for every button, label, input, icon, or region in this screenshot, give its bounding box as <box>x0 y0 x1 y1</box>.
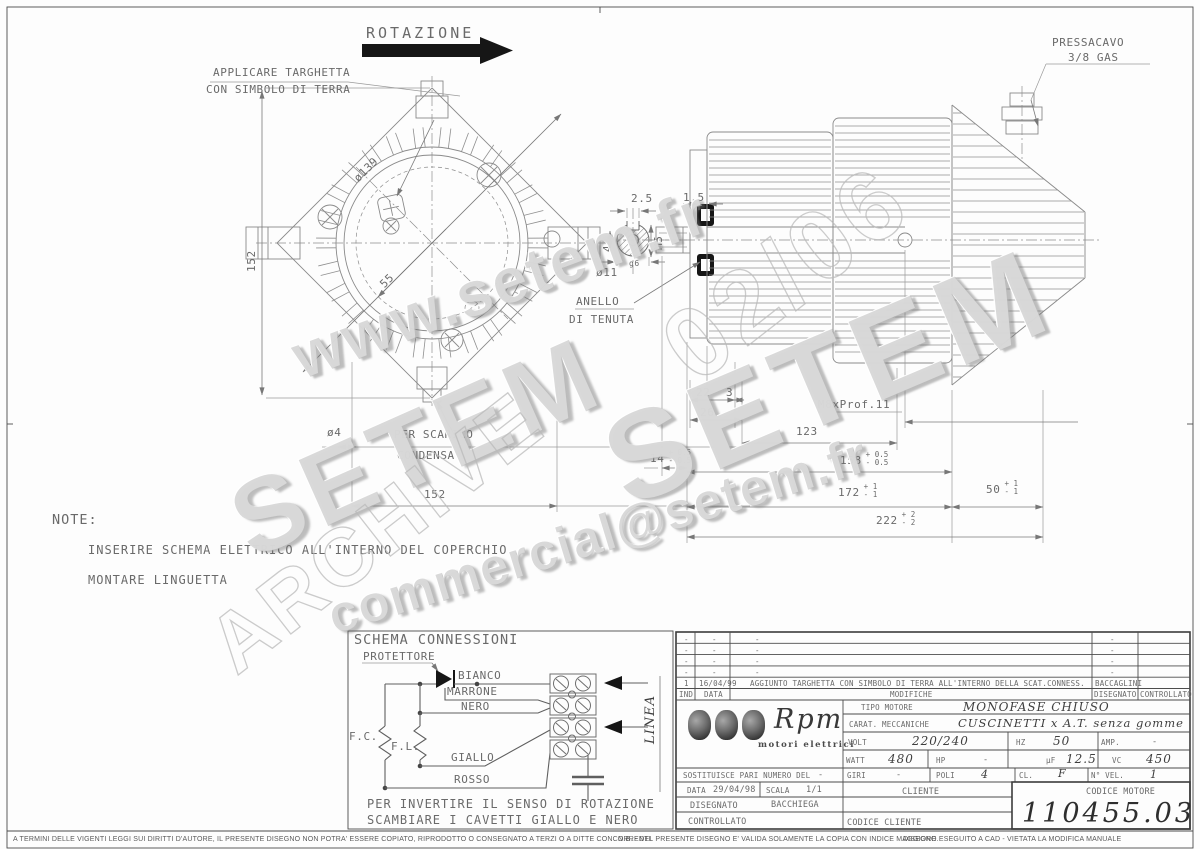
rev-row-data: - <box>712 658 717 666</box>
targhetta-note-line1: APPLICARE TARGHETTA <box>213 67 350 78</box>
value-volt: 220/240 <box>912 735 969 747</box>
dim-172-value: 172 <box>838 486 860 499</box>
rev-row-data: - <box>712 647 717 655</box>
rev-row-data: - <box>712 669 717 677</box>
label-cl: CL. <box>1019 772 1033 780</box>
notes-line2: MONTARE LINGUETTA <box>88 574 228 586</box>
seal-label-line1: ANELLO <box>576 296 619 307</box>
wire-label-rosso: ROSSO <box>454 774 490 785</box>
wire-label-bianco: BIANCO <box>458 670 501 681</box>
value-watt: 480 <box>888 753 914 765</box>
rev-header-modifiche: MODIFICHE <box>890 691 932 699</box>
logo-mark <box>715 710 738 740</box>
label-vc: VC <box>1112 757 1121 765</box>
dim-14-tol-minus: - 0.5 <box>668 457 691 465</box>
rotation-label: ROTAZIONE <box>366 26 474 41</box>
wire-label-marrone: MARRONE <box>447 686 498 697</box>
rev-row-disegnato: - <box>1110 669 1115 677</box>
dim-14-value: 14 <box>650 452 664 465</box>
rev-row-modifiche: - <box>755 669 760 677</box>
value-n-vel: 1 <box>1150 769 1158 780</box>
label-hz: HZ <box>1016 739 1025 747</box>
logo-name: Rpm <box>774 704 843 735</box>
label-linea: LINEA <box>644 695 657 744</box>
dim-26: 26 <box>700 407 714 418</box>
dim-shaft-diameter: ø11 <box>596 267 618 278</box>
rev-row-ind: - <box>684 669 689 677</box>
dim-thread-m5: M5 <box>653 236 664 250</box>
dim-drain-hole: ø4 <box>327 427 341 438</box>
dim-bolt-radius: 55 <box>378 272 396 290</box>
value-giri: - <box>896 771 901 780</box>
footer-nb: N.B. - DEL PRESENTE DISEGNO E' VALIDA SO… <box>618 836 939 843</box>
value-uf: 12.5 <box>1066 753 1097 765</box>
rev-row-data: 16/04/99 <box>699 680 737 688</box>
dim-222-value: 222 <box>876 514 898 527</box>
label-giri: GIRI <box>847 772 866 780</box>
drain-note-line1: PER SCARICO <box>394 429 473 440</box>
wire-label-nero: NERO <box>461 701 490 712</box>
rev-header-disegnato: DISEGNATO <box>1094 691 1136 699</box>
dim-key-depth: 4 <box>602 245 613 252</box>
label-fl: F.L. <box>391 741 420 752</box>
rev-row-ind: - <box>684 647 689 655</box>
rev-header-controllato: CONTROLLATO <box>1140 691 1192 699</box>
value-poli: 4 <box>981 769 989 780</box>
dim-fin-diameter: ø139 <box>352 156 380 184</box>
rev-header-data: DATA <box>704 691 723 699</box>
rev-row-disegnato: - <box>1110 647 1115 655</box>
wire-label-giallo: GIALLO <box>451 752 494 763</box>
schema-note-line2: SCAMBIARE I CAVETTI GIALLO E NERO <box>367 814 638 826</box>
label-scala: SCALA <box>766 787 790 795</box>
dim-key-width: 2.5 <box>631 193 653 204</box>
label-watt: WATT <box>846 757 865 765</box>
dim-width-bottom: 152 <box>424 489 446 500</box>
label-codice-cliente: CODICE CLIENTE <box>847 819 921 828</box>
rev-row-disegnato: BACCAGLINI <box>1095 680 1142 688</box>
targhetta-note-line2: CON SIMBOLO DI TERRA <box>206 84 350 95</box>
labels-layer: ROTAZIONE APPLICARE TARGHETTA CON SIMBOL… <box>0 0 1200 849</box>
label-poli: POLI <box>936 772 955 780</box>
rev-row-ind: - <box>684 658 689 666</box>
label-codice-motore: CODICE MOTORE <box>1086 788 1155 797</box>
label-volt: VOLT <box>848 739 867 747</box>
logo-mark <box>688 710 711 740</box>
notes-line1: INSERIRE SCHEMA ELETTRICO ALL'INTERNO DE… <box>88 544 507 556</box>
rev-row-disegnato: - <box>1110 636 1115 644</box>
rev-row-modifiche: - <box>755 658 760 666</box>
rev-row-modifiche: - <box>755 636 760 644</box>
footer-copyright: A TERMINI DELLE VIGENTI LEGGI SUI DIRITT… <box>13 836 653 843</box>
dim-50: 50+ 1- 1 <box>986 482 1018 498</box>
label-cliente: CLIENTE <box>902 788 939 797</box>
label-data: DATA <box>687 787 706 795</box>
dim-22: 22 <box>696 387 710 398</box>
label-disegnato: DISEGNATO <box>690 802 738 811</box>
dim-222: 222+ 2- 2 <box>876 513 915 529</box>
dim-158-value: 158 <box>840 454 862 467</box>
label-tipo-motore: TIPO MOTORE <box>861 704 913 712</box>
label-fc: F.C. <box>349 731 378 742</box>
pressacavo-label-line1: PRESSACAVO <box>1052 37 1124 48</box>
value-data: 29/04/98 <box>713 786 756 795</box>
value-disegnato: BACCHIEGA <box>771 801 819 810</box>
rev-row-ind: 1 <box>684 680 689 688</box>
label-sostituisce: SOSTITUISCE PARI NUMERO DEL <box>683 772 810 780</box>
value-carat-meccaniche: CUSCINETTI x A.T. senza gomme <box>958 718 1184 730</box>
drain-note-line2: CONDENSA <box>397 450 455 461</box>
dim-172-tol-minus: - 1 <box>864 491 878 499</box>
dim-222-tol-minus: - 2 <box>902 519 916 527</box>
pressacavo-label-line2: 3/8 GAS <box>1068 52 1119 63</box>
dim-shaft-tolerance: g6 <box>629 260 640 268</box>
rev-row-disegnato: - <box>1110 658 1115 666</box>
drawing-sheet: ROTAZIONE APPLICARE TARGHETTA CON SIMBOL… <box>0 0 1200 849</box>
value-sostituisce: - <box>818 771 823 780</box>
value-hz: 50 <box>1053 735 1070 747</box>
rev-row-ind: - <box>684 636 689 644</box>
rev-header-ind: IND <box>679 691 693 699</box>
value-scala: 1/1 <box>806 786 822 795</box>
value-vc: 450 <box>1146 753 1172 765</box>
label-n-vel: N° VEL. <box>1091 772 1124 780</box>
logo-mark <box>742 710 765 740</box>
label-carat-meccaniche: CARAT. MECCANICHE <box>849 721 929 729</box>
value-codice-motore: 110455.03 <box>1022 800 1195 827</box>
logo-subtitle: motori elettrici <box>758 740 855 750</box>
dim-thread-m8: M8xProf.11 <box>818 399 890 410</box>
dim-158-tol-minus: - 0.5 <box>866 459 889 467</box>
dim-3: 3 <box>726 387 733 398</box>
rev-row-data: - <box>712 636 717 644</box>
dim-123: 123 <box>796 426 818 437</box>
dim-seal: 1.5 <box>683 192 705 203</box>
rev-row-modifiche: AGGIUNTO TARGHETTA CON SIMBOLO DI TERRA … <box>750 680 1085 688</box>
value-cl: F <box>1058 768 1067 779</box>
label-amp: AMP. <box>1101 739 1120 747</box>
dim-50-tol-minus: - 1 <box>1004 488 1018 496</box>
rev-row-modifiche: - <box>755 647 760 655</box>
label-uf: µF <box>1046 757 1055 765</box>
schema-title: SCHEMA CONNESSIONI <box>354 634 518 648</box>
notes-title: NOTE: <box>52 514 98 528</box>
label-protettore: PROTETTORE <box>363 651 435 662</box>
value-tipo-motore: MONOFASE CHIUSO <box>963 701 1110 713</box>
schema-note-line1: PER INVERTIRE IL SENSO DI ROTAZIONE <box>367 798 655 810</box>
dim-14: 14+ 0.5- 0.5 <box>650 451 691 467</box>
value-hp: - <box>983 756 988 765</box>
value-amp: - <box>1152 738 1157 747</box>
dim-50-value: 50 <box>986 483 1000 496</box>
dim-158: 158+ 0.5- 0.5 <box>840 453 888 469</box>
label-hp: HP <box>936 757 945 765</box>
dim-square-height: 152 <box>246 250 257 272</box>
footer-cad: DISEGNO ESEGUITO A CAD - VIETATA LA MODI… <box>903 836 1121 843</box>
dim-172: 172+ 1- 1 <box>838 485 877 501</box>
seal-label-line2: DI TENUTA <box>569 314 634 325</box>
label-controllato: CONTROLLATO <box>688 818 747 827</box>
